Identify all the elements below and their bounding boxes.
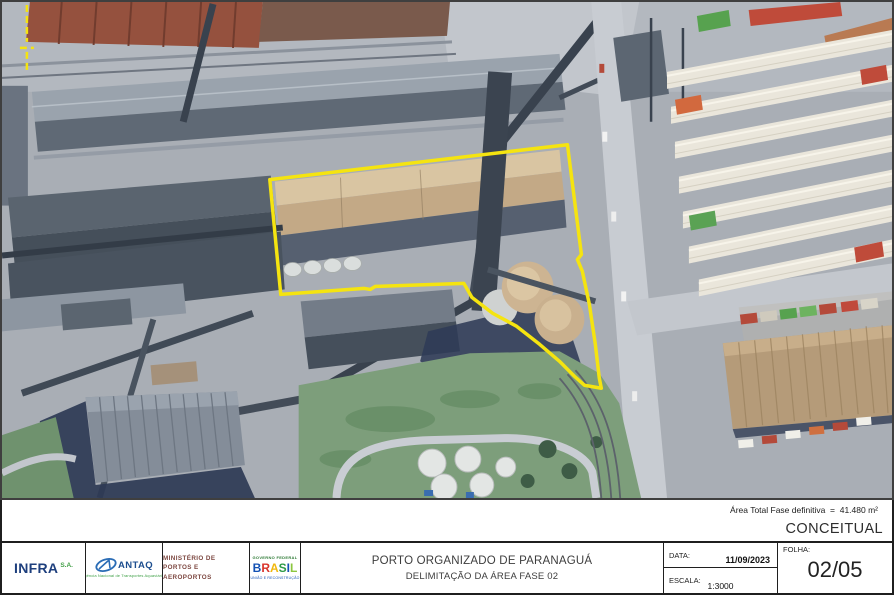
notes-band: Área Total Fase definitiva = 41.480 m² C… [0, 500, 894, 541]
infra-logo-suffix: S.A. [60, 562, 73, 569]
tan-warehouse [723, 291, 892, 448]
ministerio-logo: MINISTÉRIO DE PORTOS E AEROPORTOS [163, 543, 250, 593]
drawing-subtitle: DELIMITAÇÃO DA ÁREA FASE 02 [406, 571, 559, 582]
ministerio-line2: PORTOS E AEROPORTOS [163, 563, 249, 581]
sheet-label: FOLHA: [783, 545, 810, 554]
satellite-map [0, 0, 894, 500]
brasil-wordmark: BRASIL [253, 561, 298, 575]
drawing-sheet: Área Total Fase definitiva = 41.480 m² C… [0, 0, 894, 595]
scale-value: 1:3000 [664, 581, 777, 591]
governo-federal-logo: GOVERNO FEDERAL BRASIL UNIÃO E RECONSTRU… [250, 543, 301, 593]
ministerio-line1: MINISTÉRIO DE [163, 554, 249, 563]
governo-bottom-text: UNIÃO E RECONSTRUÇÃO [250, 576, 299, 580]
date-label: DATA: [669, 551, 690, 560]
infra-logo: INFRA S.A. [2, 543, 86, 593]
ribbed-shed [40, 391, 255, 498]
antaq-swoosh-icon [95, 558, 117, 572]
infra-logo-text: INFRA [14, 560, 58, 576]
satellite-photo [2, 2, 892, 498]
antaq-logo-text: ANTAQ [118, 560, 153, 571]
sheet-number-cell: FOLHA: 02/05 [778, 543, 892, 593]
date-row: DATA: 11/09/2023 [664, 543, 777, 568]
antaq-tagline: Agência Nacional de Transportes Aquaviár… [86, 573, 163, 578]
title-block: INFRA S.A. ANTAQ Agência Nacional de Tra… [0, 541, 894, 595]
scale-row: ESCALA: 1:3000 [664, 568, 777, 593]
sheet-number: 02/05 [778, 557, 892, 583]
date-value: 11/09/2023 [725, 555, 770, 565]
drawing-title-cell: PORTO ORGANIZADO DE PARANAGUÁ DELIMITAÇÃ… [301, 543, 664, 593]
date-scale-cell: DATA: 11/09/2023 ESCALA: 1:3000 [664, 543, 778, 593]
drawing-title: PORTO ORGANIZADO DE PARANAGUÁ [372, 555, 593, 567]
area-total-note: Área Total Fase definitiva = 41.480 m² [730, 505, 878, 515]
antaq-logo: ANTAQ Agência Nacional de Transportes Aq… [86, 543, 163, 593]
stage-label: CONCEITUAL [786, 521, 883, 537]
